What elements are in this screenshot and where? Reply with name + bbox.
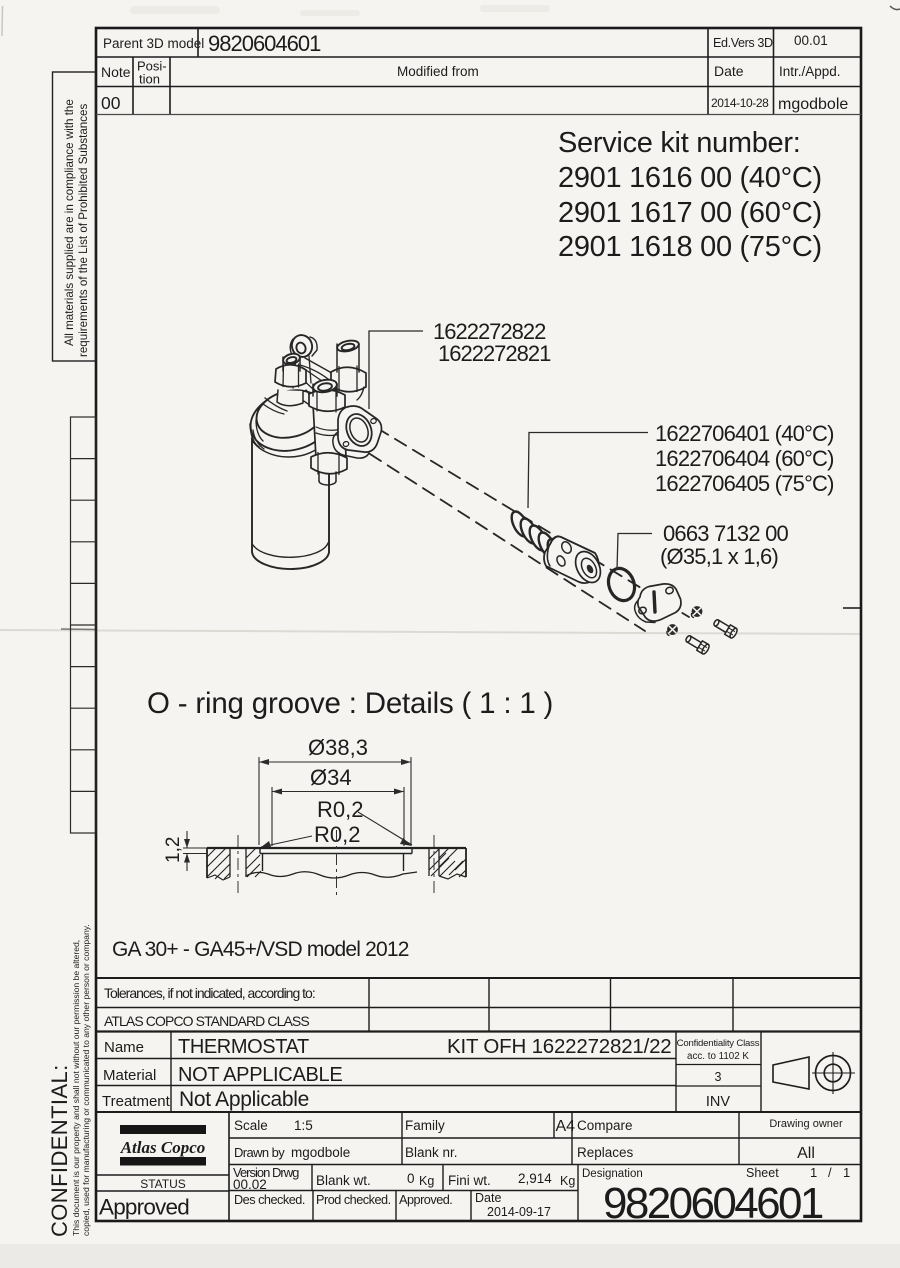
svg-text:A4: A4 [556,1118,576,1135]
svg-text:2901 1618 00 (75°C): 2901 1618 00 (75°C) [558,231,822,263]
svg-text:0663 7132 00: 0663 7132 00 [663,521,789,546]
svg-text:2014-09-17: 2014-09-17 [487,1205,551,1219]
svg-text:Fini wt.: Fini wt. [448,1173,491,1188]
svg-text:requirements of the List of Pr: requirements of the List of Prohibited S… [77,104,90,357]
svg-text:CONFIDENTIAL:: CONFIDENTIAL: [47,1064,72,1237]
svg-text:GA 30+ - GA45+/VSD model 2012: GA 30+ - GA45+/VSD model 2012 [112,938,409,961]
svg-text:(Ø35,1 x 1,6): (Ø35,1 x 1,6) [660,544,778,569]
svg-text:copied, used for manufacturing: copied, used for manufacturing or commun… [81,924,91,1236]
svg-text:acc. to 1102 K: acc. to 1102 K [687,1051,749,1062]
svg-text:2901 1617 00 (60°C): 2901 1617 00 (60°C) [558,197,822,229]
svg-text:2,914: 2,914 [518,1171,552,1186]
svg-text:Approved.: Approved. [399,1193,452,1207]
svg-text:Compare: Compare [577,1118,633,1133]
svg-text:R0,2: R0,2 [314,822,360,847]
svg-text:This document is our property: This document is our property and shall … [71,940,81,1236]
svg-text:All: All [797,1145,815,1162]
svg-text:Blank wt.: Blank wt. [316,1173,371,1188]
svg-text:Scale: Scale [234,1118,268,1133]
svg-text:Modified from: Modified from [397,64,479,79]
svg-text:/: / [828,1165,832,1180]
svg-text:1622706404 (60°C): 1622706404 (60°C) [655,446,834,471]
svg-text:00: 00 [101,93,121,113]
svg-text:Note: Note [101,64,131,80]
svg-text:NOT APPLICABLE: NOT APPLICABLE [178,1064,342,1086]
svg-text:1: 1 [810,1165,817,1180]
svg-text:Not Applicable: Not Applicable [179,1088,309,1111]
svg-text:INV: INV [706,1094,731,1110]
svg-text:1:5: 1:5 [294,1118,313,1133]
svg-text:Blank nr.: Blank nr. [405,1145,458,1160]
svg-text:1: 1 [843,1165,850,1180]
svg-text:tion: tion [139,72,160,87]
svg-text:Prod checked.: Prod checked. [316,1193,391,1207]
svg-text:00.01: 00.01 [794,33,828,48]
svg-text:0: 0 [407,1171,415,1186]
svg-text:R0,2: R0,2 [317,797,363,822]
svg-text:mgodbole: mgodbole [291,1145,350,1160]
svg-text:3: 3 [715,1070,722,1084]
svg-text:1,2: 1,2 [163,837,184,863]
svg-text:Drawn by: Drawn by [234,1145,285,1160]
svg-text:Replaces: Replaces [577,1145,634,1160]
svg-text:ATLAS COPCO STANDARD CLASS: ATLAS COPCO STANDARD CLASS [104,1013,309,1029]
svg-text:mgodbole: mgodbole [778,96,848,113]
svg-text:Kg: Kg [560,1174,575,1188]
svg-text:Ø38,3: Ø38,3 [308,735,368,760]
svg-text:Material: Material [103,1067,156,1084]
svg-text:THERMOSTAT: THERMOSTAT [178,1036,309,1058]
svg-text:KIT OFH 1622272821/22: KIT OFH 1622272821/22 [447,1035,672,1058]
svg-text:Tolerances, if not indicated,: Tolerances, if not indicated, according … [104,985,315,1001]
svg-text:1622706405 (75°C): 1622706405 (75°C) [655,471,834,496]
svg-text:1622706401 (40°C): 1622706401 (40°C) [655,421,834,446]
svg-text:2014-10-28: 2014-10-28 [711,96,769,110]
svg-text:Treatment: Treatment [102,1093,171,1110]
svg-text:All materials supplied are in: All materials supplied are in compliance… [63,99,76,346]
svg-text:O - ring groove : Details ( 1: O - ring groove : Details ( 1 : 1 ) [147,687,553,720]
svg-text:Name: Name [104,1039,144,1056]
svg-text:Parent 3D model: Parent 3D model [103,36,204,51]
svg-text:Des checked.: Des checked. [234,1193,305,1207]
svg-text:Intr./Appd.: Intr./Appd. [779,64,841,79]
svg-text:Date: Date [714,63,744,79]
svg-text:9820604601: 9820604601 [208,31,321,56]
svg-text:Family: Family [405,1118,445,1133]
svg-text:Date: Date [475,1191,501,1205]
svg-text:Kg: Kg [419,1174,434,1188]
svg-text:Approved: Approved [99,1195,189,1220]
svg-text:Ø34: Ø34 [310,765,352,790]
svg-text:2901 1616 00 (40°C): 2901 1616 00 (40°C) [558,162,822,194]
svg-text:9820604601: 9820604601 [603,1179,823,1228]
svg-text:Service kit number:: Service kit number: [558,127,801,159]
svg-text:Ed.Vers 3D: Ed.Vers 3D [713,36,773,50]
svg-text:00.02: 00.02 [233,1177,267,1192]
svg-text:1622272821: 1622272821 [438,341,551,366]
svg-text:STATUS: STATUS [140,1177,186,1191]
svg-text:Confidentiality Class: Confidentiality Class [677,1038,760,1049]
svg-text:Drawing owner: Drawing owner [769,1118,843,1130]
svg-text:Sheet: Sheet [746,1166,779,1180]
svg-text:Atlas Copco: Atlas Copco [120,1138,206,1157]
